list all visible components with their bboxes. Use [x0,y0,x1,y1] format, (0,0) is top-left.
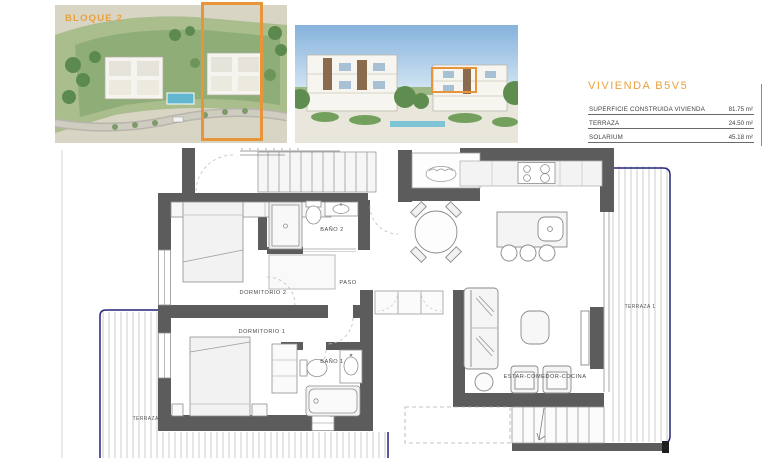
cooktop-icon [518,163,555,184]
closet [269,255,335,289]
room-label-terraza1: TERRAZA 1 [625,304,656,310]
spec-row-superficie: SUPERFICIE CONSTRUIDA VIVIENDA 81.75 m² [588,101,754,115]
block-label: BLOQUE 2 [65,13,123,24]
pool-icon [390,121,445,127]
bathroom-1: BAÑO 1 [300,350,362,416]
street-render [295,25,518,143]
room-label-paso: PASO [339,280,356,286]
bed-icon [190,337,250,416]
hall-closet [375,291,443,314]
site-plan-thumbnail: BLOQUE 2 [55,5,287,143]
spec-value: 45.18 m² [729,134,753,141]
kitchen-island-icon [497,212,567,261]
stairs-bottom [512,407,604,443]
unit-highlight-box [431,67,477,93]
page-edge-line [761,84,762,146]
coffee-table-icon [521,311,549,344]
glass-wall [604,212,609,392]
spec-row-terraza: TERRAZA 24.50 m² [588,115,754,129]
room-label-bano1: BAÑO 1 [320,358,344,365]
pool-icon [167,93,194,104]
side-table-icon [475,373,493,391]
kitchen-counter [460,161,602,186]
toilet-icon [306,201,321,224]
elevation-thumbnail [295,25,518,143]
building-cluster [105,57,163,99]
bathtub-icon [306,386,360,416]
floorplan-page: TERRAZA 2 TERRAZA 1 [0,0,770,460]
sofa-icon [464,288,498,369]
sink-icon [340,350,362,383]
spec-value: 81.75 m² [729,106,753,113]
spec-label: TERRAZA [589,120,619,127]
building-left [307,55,397,111]
unit-highlight-box [201,2,263,141]
sink-icon [325,202,358,216]
tv-console-icon [581,311,589,365]
room-label-dormitorio2: DORMITORIO 2 [240,290,287,296]
car-icon [173,117,183,122]
spec-row-solarium: SOLARIUM 45.18 m² [588,129,754,143]
room-label-estar: ESTAR-COMEDOR-COCINA [504,374,587,380]
room-label-dormitorio1: DORMITORIO 1 [239,329,286,335]
spec-label: SOLARIUM [589,134,623,141]
bedroom-1: DORMITORIO 1 [172,329,297,416]
spec-value: 24.50 m² [729,120,753,127]
spec-label: SUPERFICIE CONSTRUIDA VIVIENDA [589,106,705,113]
unit-spec-panel: VIVIENDA B5V5 SUPERFICIE CONSTRUIDA VIVI… [588,80,754,143]
room-label-bano2: BAÑO 2 [320,226,344,233]
bathroom-2: BAÑO 2 [269,201,358,252]
projection-outline [405,407,510,443]
unit-title: VIVIENDA B5V5 [588,80,754,92]
laundry-sink-icon [426,167,456,182]
bed-icon [183,202,243,282]
wardrobe-icon [272,344,297,393]
stairs-top [196,148,376,192]
shower-icon [269,202,302,249]
dining-table-icon [411,202,462,263]
